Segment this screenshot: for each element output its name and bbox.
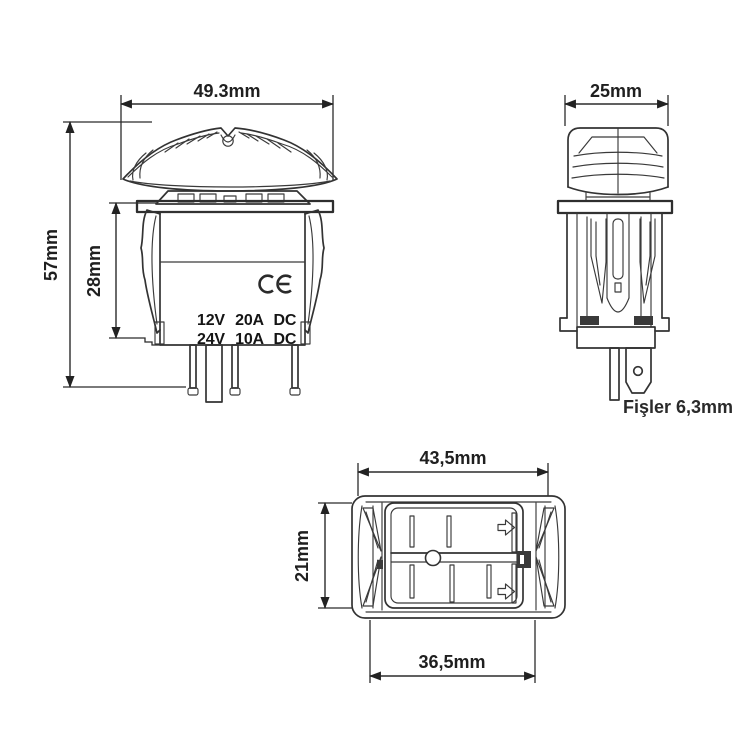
ce-mark-icon [260,276,291,293]
side-width-dimension: 25mm [565,81,668,126]
bottom-outer-width-dimension: 43,5mm [358,448,548,496]
front-view: 49.3mm 57mm 28mm [41,81,337,402]
bottom-base-panel [385,503,531,608]
side-view: 25mm [558,81,733,417]
rating-line-1: 12V 20A DC [197,312,297,329]
rocker-cap [123,128,337,191]
latch-block [517,551,531,568]
bottom-inner-width-dimension: 36,5mm [370,620,535,683]
front-mounting-flange [137,201,333,212]
pivot-hole [426,551,441,566]
side-rocker-cap [568,128,668,201]
front-total-height-dimension: 57mm [41,122,186,387]
side-spring-clips [580,219,655,325]
bottom-outer-width-label: 43,5mm [419,448,486,468]
terminal-size-label: Fişler 6,3mm [623,397,733,417]
side-terminals [610,348,651,400]
front-terminals [188,345,300,402]
bottom-view: 43,5mm 21mm 36,5mm [292,448,565,683]
rocker-switch-drawing: 49.3mm 57mm 28mm [0,0,750,750]
front-body-height-dimension: 28mm [84,203,161,345]
bottom-height-dimension: 21mm [292,503,352,608]
front-body-height-label: 28mm [84,245,104,297]
side-mounting-flange [558,201,672,213]
bottom-inner-width-label: 36,5mm [418,652,485,672]
side-width-label: 25mm [590,81,642,101]
rocker-end-arcs [133,150,328,180]
front-width-dimension: 49.3mm [121,81,333,180]
side-switch-body [560,213,669,348]
bottom-height-label: 21mm [292,530,312,582]
bottom-bezel [352,496,565,618]
front-total-height-label: 57mm [41,229,61,281]
diagram-canvas: 49.3mm 57mm 28mm [0,0,750,750]
front-width-label: 49.3mm [193,81,260,101]
rating-text: 12V 20A DC 24V 10A DC [197,312,297,348]
